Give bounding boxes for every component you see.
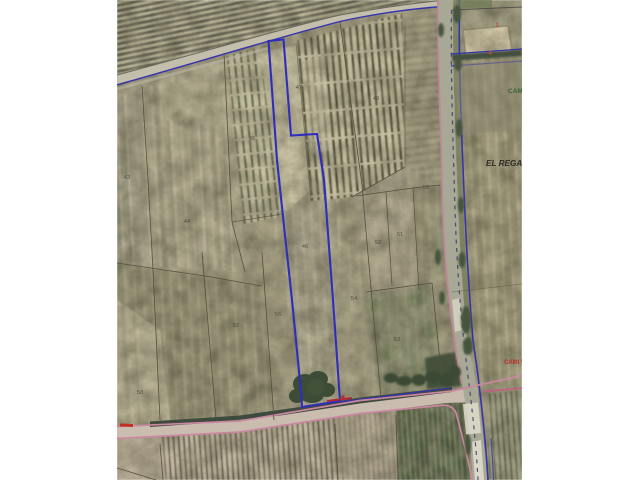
svg-text:58: 58 [137, 390, 143, 396]
svg-text:47: 47 [296, 85, 302, 91]
svg-text:53: 53 [394, 337, 400, 343]
svg-text:CAMI V: CAMI V [504, 360, 525, 366]
svg-text:49: 49 [373, 96, 379, 102]
svg-text:57: 57 [233, 323, 239, 329]
svg-text:46: 46 [302, 244, 308, 250]
svg-text:52: 52 [375, 240, 381, 246]
svg-text:44: 44 [184, 219, 191, 225]
svg-text:56: 56 [275, 312, 281, 318]
svg-text:43: 43 [124, 175, 130, 181]
svg-text:54: 54 [351, 296, 358, 302]
svg-text:50: 50 [423, 185, 429, 191]
svg-text:45: 45 [249, 136, 255, 142]
svg-text:51: 51 [397, 232, 403, 238]
svg-text:EL REGAT: EL REGAT [486, 159, 528, 168]
